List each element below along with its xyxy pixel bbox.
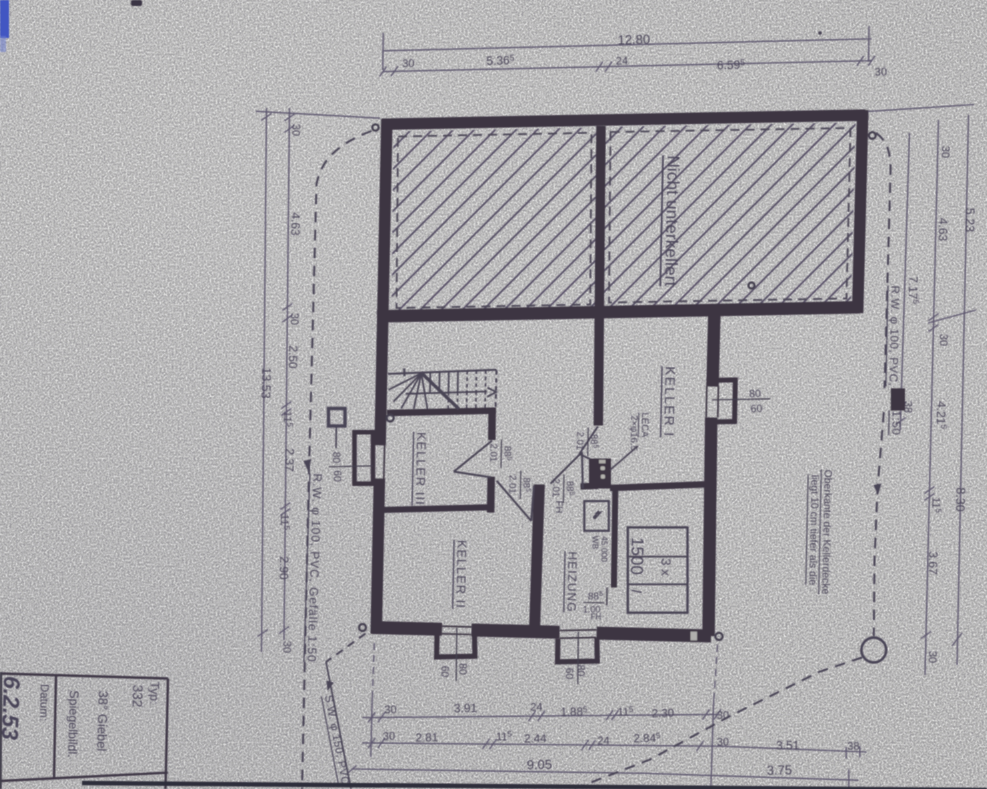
svg-text:9.05: 9.05: [527, 757, 553, 772]
svg-text:Spiegelbildl.: Spiegelbildl.: [65, 690, 81, 758]
svg-text:30: 30: [926, 651, 938, 664]
svg-text:5.23: 5.23: [962, 208, 977, 233]
svg-text:2.90: 2.90: [277, 556, 292, 580]
svg-text:38: 38: [847, 740, 859, 752]
svg-text:60: 60: [331, 470, 343, 482]
svg-text:2.37: 2.37: [282, 448, 297, 472]
svg-text:HEIZUNG: HEIZUNG: [564, 551, 579, 612]
svg-text:30: 30: [939, 146, 951, 159]
svg-text:2.01: 2.01: [550, 478, 561, 497]
svg-text:80: 80: [456, 663, 468, 675]
svg-text:FH: FH: [591, 613, 602, 622]
svg-text:2.01: 2.01: [506, 475, 517, 494]
svg-text:30: 30: [937, 334, 949, 347]
svg-text:13.53: 13.53: [259, 367, 274, 399]
svg-text:3.91: 3.91: [454, 701, 478, 715]
svg-text:30: 30: [402, 58, 415, 70]
svg-text:2.81: 2.81: [416, 732, 439, 744]
svg-text:FH: FH: [553, 500, 564, 513]
svg-text:KELLER III: KELLER III: [413, 432, 429, 506]
svg-text:3.67: 3.67: [926, 551, 941, 575]
svg-text:60: 60: [563, 668, 575, 680]
svg-text:2.44: 2.44: [524, 733, 547, 745]
svg-text:30: 30: [717, 736, 729, 748]
svg-text:60: 60: [750, 403, 762, 415]
svg-text:KELLER II: KELLER II: [453, 540, 468, 609]
svg-text:KELLER I: KELLER I: [661, 366, 677, 438]
svg-text:8.30: 8.30: [953, 487, 968, 512]
svg-text:2.01: 2.01: [574, 431, 585, 450]
svg-text:24: 24: [530, 701, 542, 713]
svg-text:24: 24: [597, 735, 609, 747]
svg-text:1500: 1500: [627, 537, 647, 575]
svg-text:4.63: 4.63: [288, 212, 303, 236]
svg-text:2×φ16.5: 2×φ16.5: [628, 415, 640, 451]
svg-text:liegt 10 cm tiefer als die: liegt 10 cm tiefer als die: [806, 475, 820, 586]
svg-text:80: 80: [330, 452, 342, 464]
svg-text:R.W. φ 100, PVC,: R.W. φ 100, PVC,: [886, 285, 900, 386]
svg-text:2.50: 2.50: [286, 345, 301, 369]
svg-text:80: 80: [574, 665, 586, 677]
svg-text:30: 30: [383, 731, 395, 743]
svg-text:332: 332: [130, 685, 146, 708]
svg-text:WB: WB: [590, 536, 600, 550]
svg-text:4.63: 4.63: [936, 218, 951, 242]
svg-text:2.30: 2.30: [652, 708, 675, 720]
svg-text:1:50: 1:50: [889, 410, 902, 435]
svg-text:80: 80: [749, 388, 761, 400]
svg-text:30: 30: [875, 66, 888, 78]
svg-text:30: 30: [384, 704, 396, 716]
svg-text:6.2.53: 6.2.53: [0, 676, 25, 741]
svg-text:Datum:: Datum:: [37, 684, 50, 721]
svg-text:LECA: LECA: [639, 412, 651, 438]
svg-text:30: 30: [289, 124, 301, 137]
svg-text:38° Giebel: 38° Giebel: [94, 690, 111, 751]
svg-text:3.75: 3.75: [767, 762, 793, 777]
svg-text:30: 30: [288, 313, 300, 326]
svg-text:2.01: 2.01: [487, 443, 498, 462]
svg-text:24: 24: [616, 55, 629, 67]
svg-text:12.80: 12.80: [617, 32, 650, 48]
svg-text:Nicht unterkellert: Nicht unterkellert: [661, 155, 683, 287]
svg-text:Typ:: Typ:: [147, 681, 162, 704]
svg-text:3.51: 3.51: [776, 738, 800, 752]
svg-text:30: 30: [280, 641, 292, 654]
svg-text:3 x: 3 x: [658, 558, 673, 576]
svg-text:60: 60: [438, 666, 450, 678]
